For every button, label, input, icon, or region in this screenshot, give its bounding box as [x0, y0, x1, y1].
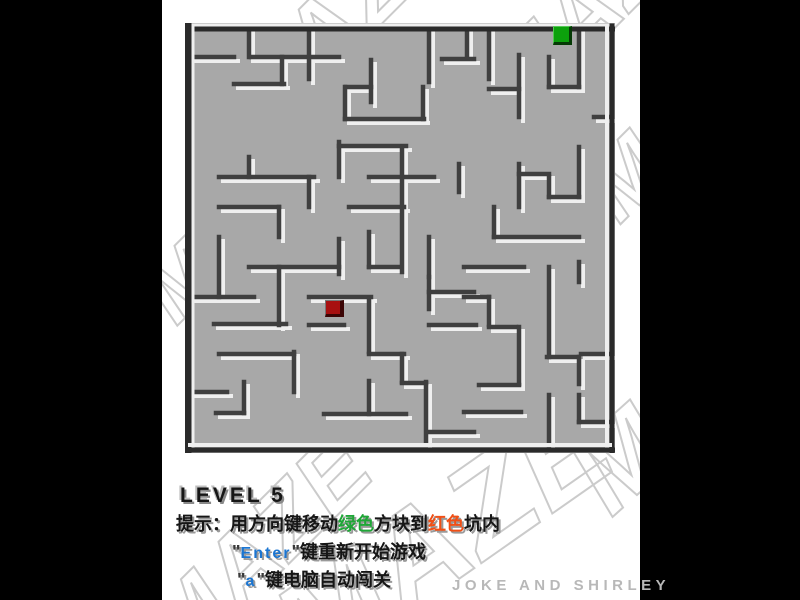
maze-game-area[interactable] [185, 23, 615, 453]
red-target-pit [325, 300, 344, 317]
maze-walls-canvas [185, 23, 615, 453]
green-player-block [553, 26, 572, 45]
